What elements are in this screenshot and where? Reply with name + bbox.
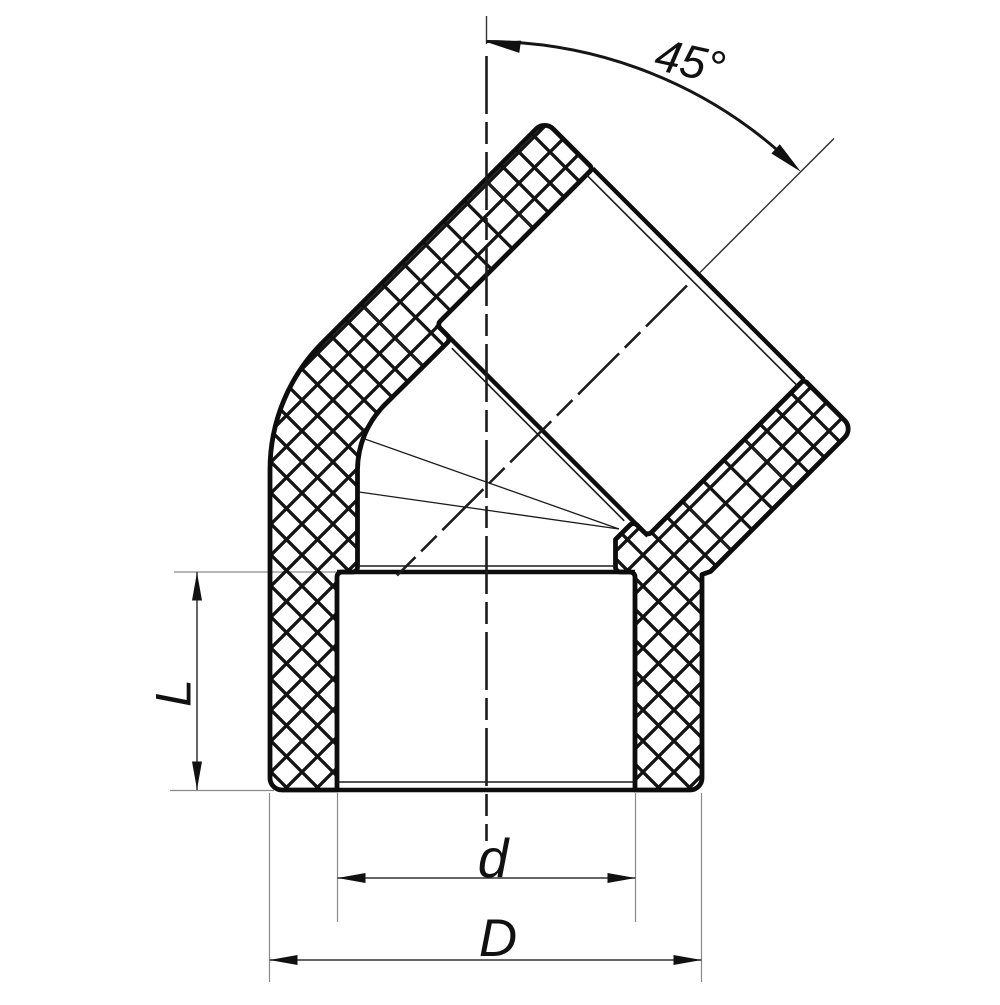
svg-text:L: L bbox=[146, 679, 202, 707]
svg-text:d: d bbox=[478, 827, 511, 889]
svg-text:D: D bbox=[479, 909, 517, 968]
